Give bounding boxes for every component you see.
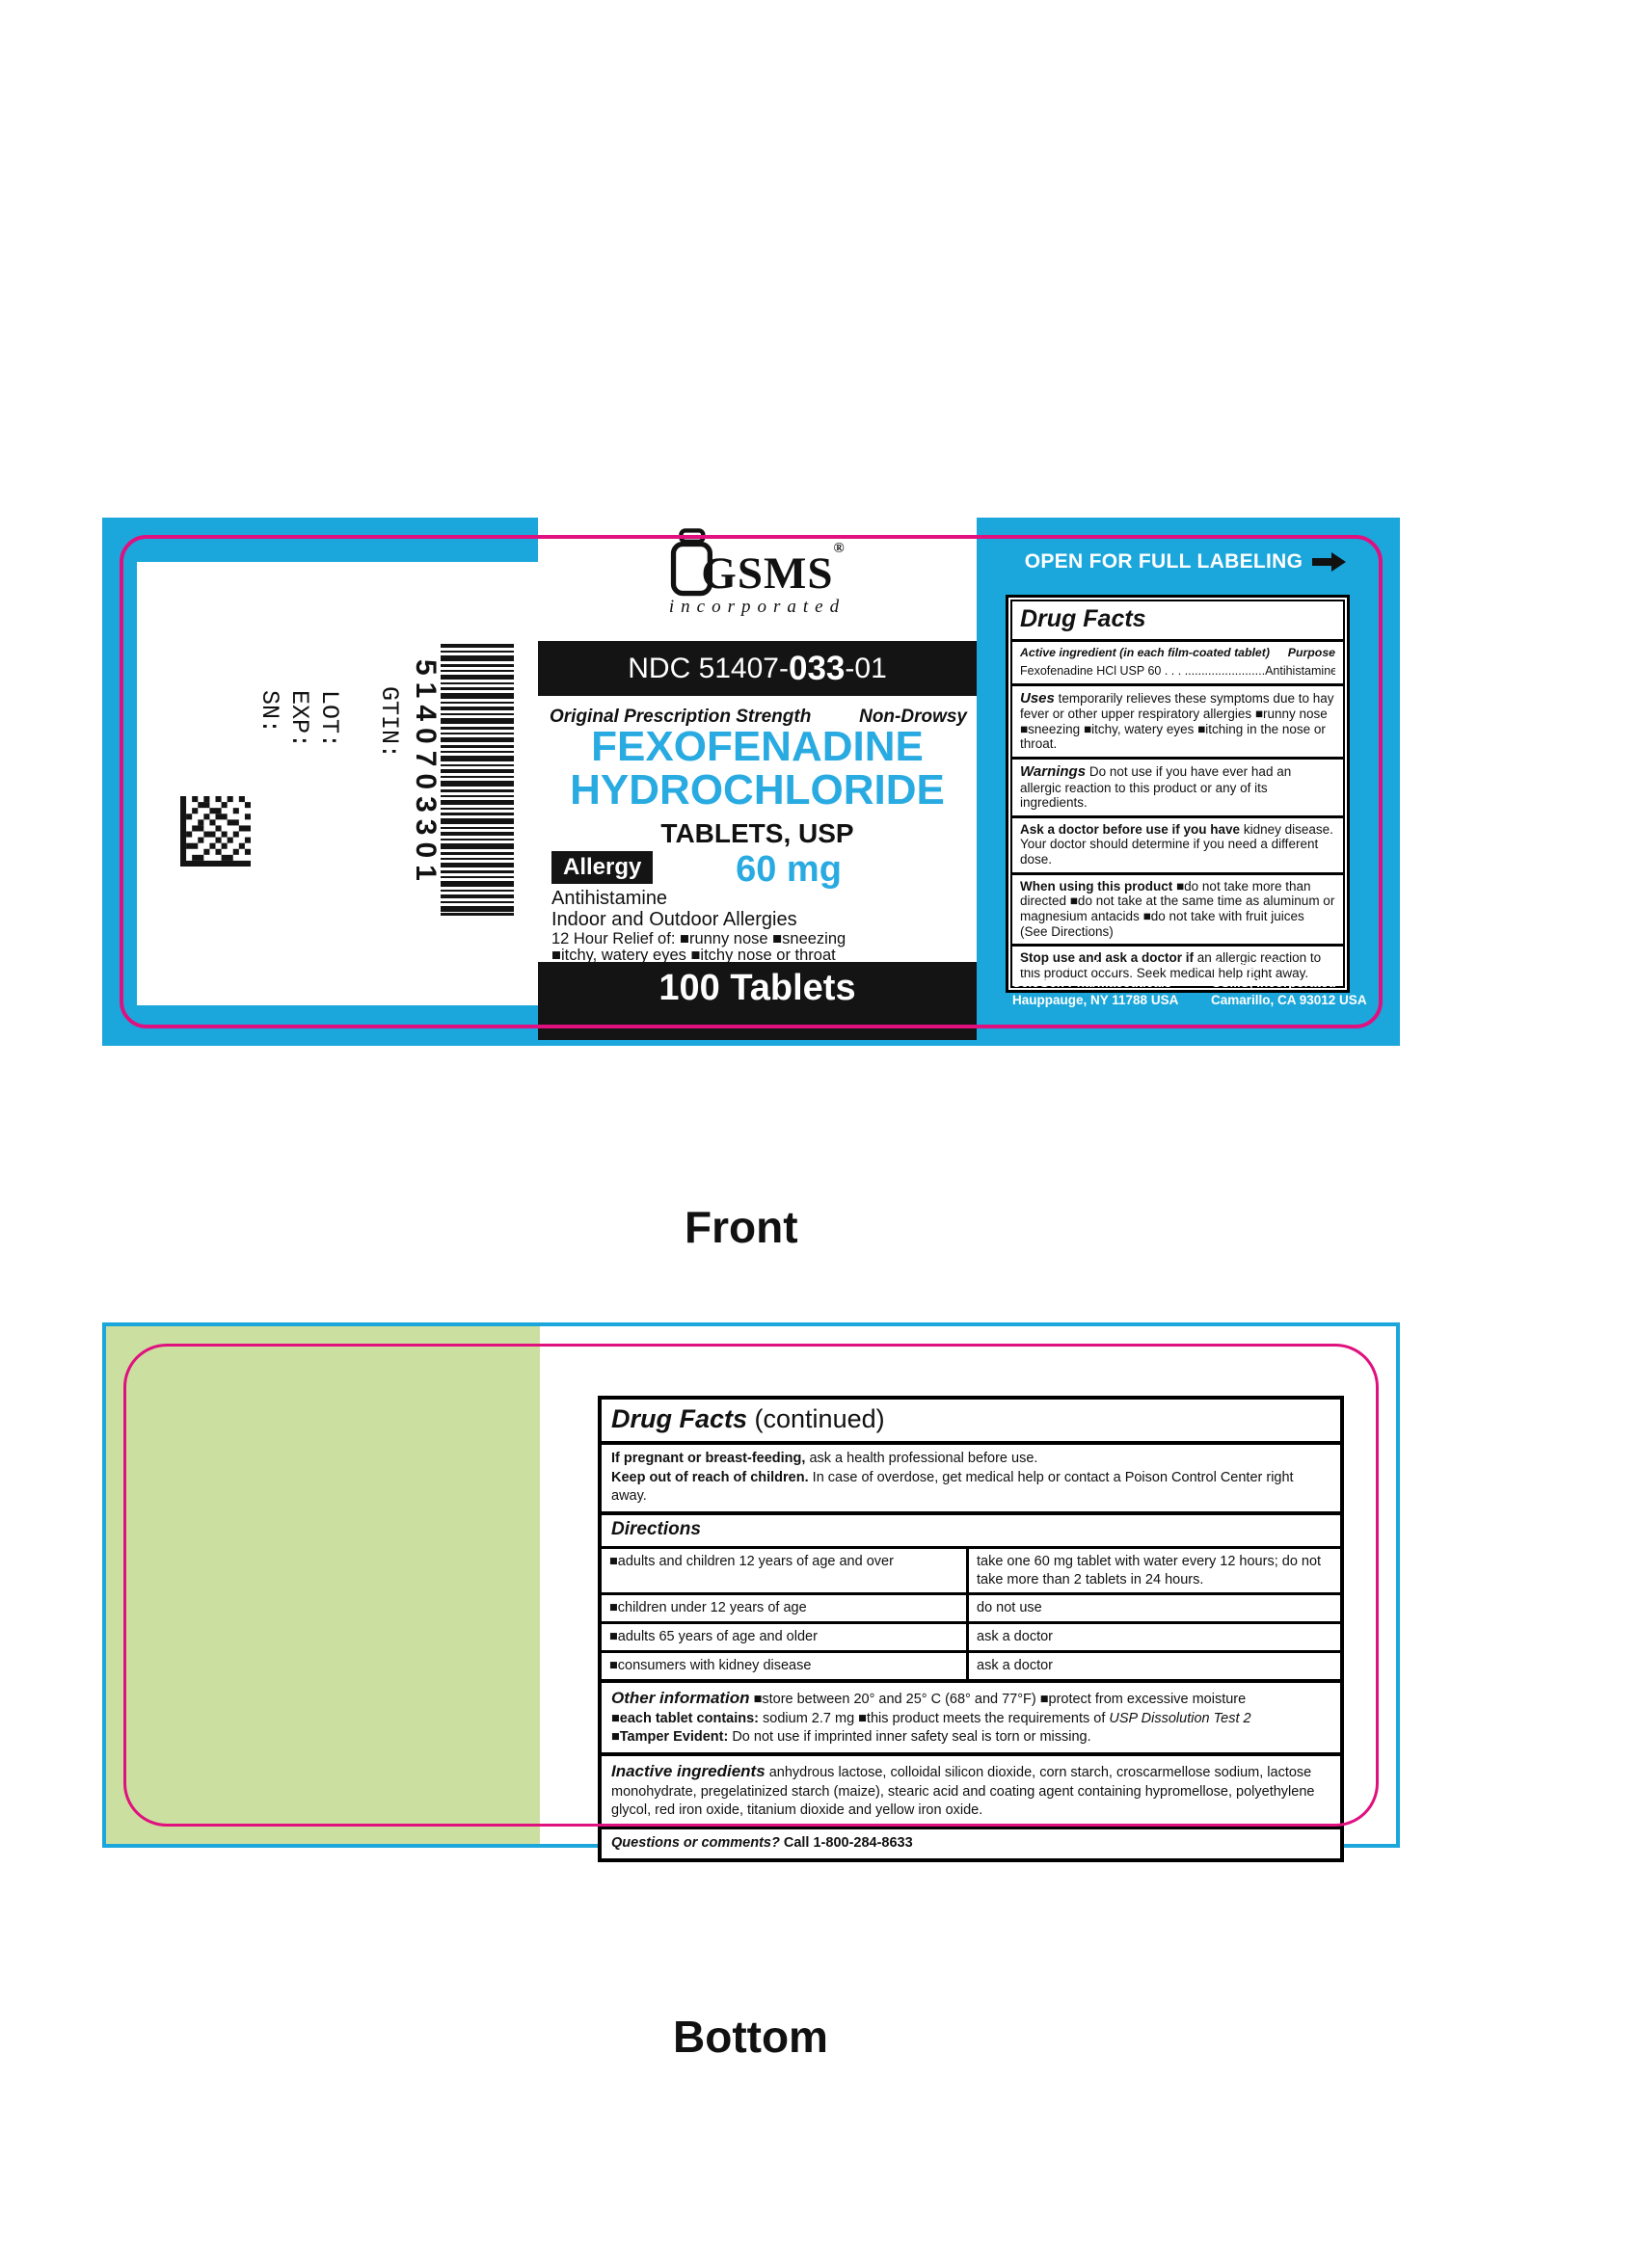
inactive-ingredients-lead: Inactive ingredients	[611, 1762, 766, 1780]
tablet-count: 100 Tablets	[658, 968, 855, 1040]
packaged-by-label: Packaged by:	[1211, 957, 1367, 974]
packager-address: Camarillo, CA 93012 USA	[1211, 992, 1367, 1009]
green-flap-area	[106, 1326, 540, 1844]
warnings-lead: Warnings	[1020, 763, 1086, 780]
continued-text: (continued)	[747, 1404, 885, 1433]
directions-dose-cell: ask a doctor	[969, 1624, 1340, 1650]
lot-label: LOT:	[315, 690, 343, 748]
manufacturer-name: ScieGen Pharmaceuticals	[1012, 974, 1178, 992]
bottom-label-panel: Drug Facts (continued) If pregnant or br…	[102, 1322, 1400, 1848]
tablet-contains-lead: ■each tablet contains:	[611, 1711, 759, 1726]
purpose-value: Antihistamine	[1265, 664, 1335, 678]
gsms-logo-subtext: incorporated	[669, 597, 846, 618]
sn-label: SN:	[255, 690, 283, 734]
keep-out-lead: Keep out of reach of children.	[611, 1470, 809, 1485]
gsms-logo-text: GSMS	[701, 551, 833, 597]
indication-text: Indoor and Outdoor Allergies	[551, 909, 797, 931]
questions-lead: Questions or comments?	[611, 1835, 780, 1851]
dosage-form: TABLETS, USP	[538, 818, 977, 849]
questions-phone: Call 1-800-284-8633	[780, 1835, 913, 1851]
keep-out-line: Keep out of reach of children. In case o…	[611, 1469, 1330, 1507]
open-flap-row: OPEN FOR FULL LABELING	[1012, 550, 1359, 574]
arrow-right-icon	[1312, 551, 1347, 573]
barcode	[441, 644, 514, 916]
drug-facts-box: Drug Facts Active ingredient (in each fi…	[1006, 595, 1350, 993]
tamper-evident-lead: ■Tamper Evident:	[611, 1729, 728, 1745]
data-matrix-code	[180, 795, 251, 867]
when-using-section: When using this product ■do not take mor…	[1012, 872, 1343, 945]
gsms-logo: GSMS ® incorporated	[538, 527, 977, 618]
table-row: ■children under 12 years of age do not u…	[602, 1592, 1340, 1621]
packaged-by-block: Packaged by: GSMS, Incorporated Camarill…	[1211, 957, 1367, 1010]
exp-label: EXP:	[285, 690, 313, 748]
drug-facts-continued-header: Drug Facts (continued)	[602, 1400, 1340, 1441]
manufacturer-address: Hauppauge, NY 11788 USA	[1012, 992, 1178, 1009]
drug-name-line1: FEXOFENADINE	[538, 726, 977, 768]
tablet-count-bar: 100 Tablets	[538, 962, 977, 1040]
active-ingredient-section: Active ingredient (in each film-coated t…	[1012, 639, 1343, 683]
packager-name: GSMS, Incorporated	[1211, 974, 1367, 992]
table-row: ■consumers with kidney disease ask a doc…	[602, 1650, 1340, 1679]
ask-doctor-lead: Ask a doctor before use if you have	[1020, 822, 1240, 837]
ask-doctor-section: Ask a doctor before use if you have kidn…	[1012, 815, 1343, 872]
other-information-lead: Other information	[611, 1689, 750, 1707]
active-ingredient-header: Active ingredient (in each film-coated t…	[1020, 646, 1270, 659]
drug-facts-continued-box: Drug Facts (continued) If pregnant or br…	[598, 1396, 1344, 1862]
ndc-product-code: 033	[789, 650, 845, 688]
inactive-ingredients-section: Inactive ingredients anhydrous lactose, …	[602, 1752, 1340, 1826]
table-row: ■adults and children 12 years of age and…	[602, 1549, 1340, 1593]
manufactured-by-block: Manufactured by: ScieGen Pharmaceuticals…	[1012, 957, 1178, 1010]
directions-dose-cell: take one 60 mg tablet with water every 1…	[969, 1549, 1340, 1593]
front-center-panel: GSMS ® incorporated NDC 51407-033-01 Ori…	[538, 518, 977, 1040]
ndc-bar: NDC 51407-033-01	[538, 641, 977, 696]
allergy-badge: Allergy	[551, 851, 653, 884]
uses-section: Uses temporarily relieves these symptoms…	[1012, 683, 1343, 757]
when-using-lead: When using this product	[1020, 879, 1172, 894]
uses-text: temporarily relieves these symptoms due …	[1020, 691, 1333, 752]
bottom-caption: Bottom	[673, 2011, 828, 2063]
leader-dots: . . . ........................	[1161, 664, 1265, 678]
directions-table: ■adults and children 12 years of age and…	[602, 1546, 1340, 1679]
usp-dissolution-text: USP Dissolution Test 2	[1109, 1711, 1250, 1726]
directions-dose-cell: ask a doctor	[969, 1653, 1340, 1679]
drug-facts-title: Drug Facts	[1012, 601, 1343, 639]
page: SN: EXP: LOT: GTIN: 5140703301	[0, 0, 1639, 2268]
table-row: ■adults 65 years of age and older ask a …	[602, 1621, 1340, 1650]
directions-dose-cell: do not use	[969, 1595, 1340, 1621]
registered-trademark: ®	[833, 541, 844, 557]
pregnancy-line: If pregnant or breast-feeding, ask a hea…	[611, 1450, 1330, 1469]
directions-who-cell: ■adults 65 years of age and older	[602, 1624, 969, 1650]
other-information-storage: ■store between 20° and 25° C (68° and 77…	[750, 1692, 1247, 1707]
directions-title: Directions	[602, 1511, 1340, 1546]
front-caption: Front	[685, 1201, 798, 1253]
drug-facts-continued-title: Drug Facts	[611, 1404, 747, 1433]
directions-who-cell: ■consumers with kidney disease	[602, 1653, 969, 1679]
pregnancy-section: If pregnant or breast-feeding, ask a hea…	[602, 1441, 1340, 1511]
barcode-number: 5140703301	[409, 659, 442, 888]
pregnancy-lead: If pregnant or breast-feeding,	[611, 1451, 805, 1466]
purpose-header: Purpose	[1288, 646, 1335, 659]
gtin-label: GTIN:	[375, 686, 403, 759]
pregnancy-text: ask a health professional before use.	[805, 1451, 1037, 1466]
ndc-prefix: NDC 51407-	[628, 653, 789, 685]
directions-who-cell: ■adults and children 12 years of age and…	[602, 1549, 969, 1593]
ndc-suffix: -01	[845, 653, 886, 685]
drug-class: Antihistamine	[551, 888, 667, 910]
open-flap-text: OPEN FOR FULL LABELING	[1025, 550, 1303, 574]
directions-who-cell: ■children under 12 years of age	[602, 1595, 969, 1621]
tamper-evident-text: Do not use if imprinted inner safety sea…	[728, 1729, 1090, 1745]
tablet-contains-text: sodium 2.7 mg ■this product meets the re…	[759, 1711, 1109, 1726]
uses-lead: Uses	[1020, 690, 1055, 707]
manufactured-by-label: Manufactured by:	[1012, 957, 1178, 974]
questions-section: Questions or comments? Call 1-800-284-86…	[602, 1826, 1340, 1858]
drug-name-line2: HYDROCHLORIDE	[538, 769, 977, 812]
active-ingredient-name: Fexofenadine HCl USP 60	[1020, 664, 1161, 678]
other-information-section: Other information ■store between 20° and…	[602, 1679, 1340, 1752]
front-label-panel: SN: EXP: LOT: GTIN: 5140703301	[102, 518, 1400, 1046]
warnings-section: Warnings Do not use if you have ever had…	[1012, 757, 1343, 815]
dose-strength: 60 mg	[683, 849, 895, 891]
